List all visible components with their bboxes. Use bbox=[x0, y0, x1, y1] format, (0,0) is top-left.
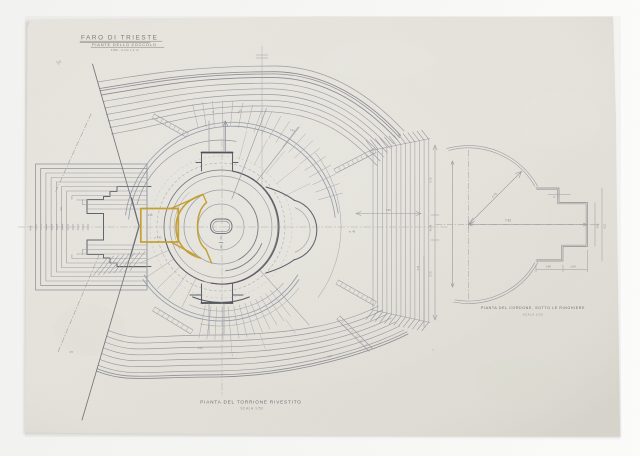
svg-text:5.70: 5.70 bbox=[429, 271, 433, 277]
svg-text:4.44: 4.44 bbox=[30, 225, 33, 230]
svg-text:41.44: 41.44 bbox=[429, 224, 433, 231]
svg-text:1.50: 1.50 bbox=[148, 214, 153, 217]
svg-text:4.98: 4.98 bbox=[597, 223, 600, 228]
svg-text:7.36: 7.36 bbox=[385, 208, 391, 212]
svg-text:5.70: 5.70 bbox=[429, 177, 433, 183]
svg-text:6.21: 6.21 bbox=[604, 223, 607, 228]
svg-text:1.48: 1.48 bbox=[545, 265, 551, 269]
svg-text:PIANTE DELLO ZOCCOLO: PIANTE DELLO ZOCCOLO bbox=[92, 42, 157, 47]
svg-text:1/50 · 2 cm = 1 m: 1/50 · 2 cm = 1 m bbox=[111, 48, 139, 52]
svg-text:1.04: 1.04 bbox=[570, 265, 576, 269]
svg-text:FARO DI TRIESTE: FARO DI TRIESTE bbox=[81, 35, 158, 42]
svg-text:m .49: m .49 bbox=[349, 231, 356, 234]
svg-text:PIANTA DEL CORDONE, SOTTO LE R: PIANTA DEL CORDONE, SOTTO LE RINGHIERE bbox=[481, 306, 585, 310]
svg-text:SCALA 1/20: SCALA 1/20 bbox=[523, 313, 544, 317]
svg-text:SCALA 1/50: SCALA 1/50 bbox=[240, 407, 263, 411]
svg-text:p 7.42: p 7.42 bbox=[155, 237, 163, 240]
svg-text:7.42: 7.42 bbox=[505, 219, 511, 223]
svg-text:PIANTA DEL TORRIONE RIVESTITO: PIANTA DEL TORRIONE RIVESTITO bbox=[200, 400, 301, 405]
svg-text:5.74: 5.74 bbox=[417, 265, 420, 270]
